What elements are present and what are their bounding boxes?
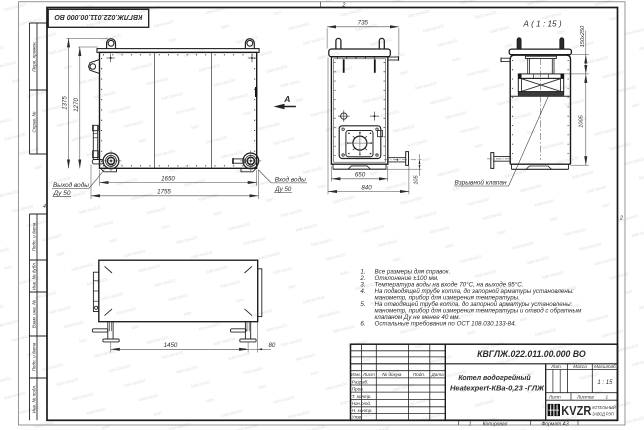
svg-text:Дата: Дата (431, 372, 445, 377)
svg-text:Инв. № дубл.: Инв. № дубл. (31, 262, 36, 290)
svg-text:Подп. и дата: Подп. и дата (31, 222, 36, 251)
svg-text:Перв. примен.: Перв. примен. (31, 41, 36, 72)
svg-text:840: 840 (361, 184, 372, 191)
svg-text:А: А (283, 94, 290, 104)
svg-text:1375: 1375 (62, 96, 69, 110)
svg-text:Копировал: Копировал (483, 422, 508, 428)
svg-text:КВГЛЖ.022.011.00.000 ВО: КВГЛЖ.022.011.00.000 ВО (477, 349, 586, 359)
svg-text:Масса: Масса (573, 364, 587, 369)
svg-text:1270: 1270 (73, 98, 80, 112)
svg-text:Взрывной клапан: Взрывной клапан (455, 180, 508, 187)
svg-text:1450: 1450 (164, 342, 178, 349)
svg-text:Формат А3: Формат А3 (541, 422, 569, 428)
svg-text:KVZR: KVZR (561, 403, 591, 418)
svg-text:1005: 1005 (579, 114, 585, 127)
svg-text:80: 80 (268, 342, 275, 349)
svg-text:1755: 1755 (157, 189, 171, 196)
svg-text:Утв.: Утв. (352, 415, 362, 420)
svg-text:№ докум.: № докум. (382, 372, 402, 377)
svg-text:1650: 1650 (161, 175, 175, 182)
svg-text:Изм.: Изм. (351, 372, 361, 377)
svg-text:Подп. и дата: Подп. и дата (31, 342, 36, 371)
svg-text:2: 2 (619, 216, 623, 222)
svg-text:Т. контр.: Т. контр. (352, 394, 372, 399)
svg-text:Листов: Листов (576, 394, 594, 399)
svg-text:КВГЛЖ.022.011.00.000 ВО: КВГЛЖ.022.011.00.000 ВО (54, 13, 142, 22)
svg-text:5.: 5. (360, 301, 365, 308)
svg-text:Разраб.: Разраб. (352, 380, 369, 385)
svg-text:Лит.: Лит. (550, 364, 562, 369)
svg-text:Инв. № подл.: Инв. № подл. (31, 385, 36, 414)
svg-text:КОТЕЛЬНЫЙ: КОТЕЛЬНЫЙ (592, 403, 616, 410)
svg-text:Нач.отд.: Нач.отд. (352, 401, 371, 406)
svg-text:Котел водогрейный: Котел водогрейный (458, 374, 531, 382)
svg-text:Heatexpert-КВа-0,23 -ГЛЖ: Heatexpert-КВа-0,23 -ГЛЖ (450, 386, 545, 393)
svg-text:Лист: Лист (362, 372, 375, 377)
svg-text:1: 1 (606, 394, 609, 399)
svg-text:4.: 4. (360, 288, 365, 295)
svg-text:Ду 50: Ду 50 (52, 191, 71, 197)
svg-text:Выход воды: Выход воды (53, 183, 90, 189)
svg-text:6.: 6. (360, 321, 365, 328)
svg-text:150х250: 150х250 (580, 25, 586, 47)
svg-text:Справ. №: Справ. № (31, 112, 36, 133)
svg-text:А ( 1 : 15 ): А ( 1 : 15 ) (522, 19, 561, 28)
svg-text:Лист: Лист (548, 394, 561, 399)
svg-text:Подп.: Подп. (413, 372, 425, 377)
svg-text:650: 650 (355, 172, 366, 179)
svg-text:Пров.: Пров. (352, 387, 364, 392)
svg-text:735: 735 (358, 20, 369, 27)
svg-text:2: 2 (342, 3, 346, 9)
svg-text:1 : 15: 1 : 15 (597, 380, 613, 386)
svg-text:Масштаб: Масштаб (594, 364, 616, 369)
svg-text:Вход воды: Вход воды (275, 178, 307, 184)
svg-text:4: 4 (43, 204, 46, 210)
svg-text:Ду 50: Ду 50 (274, 187, 292, 193)
svg-text:ЗАВОД РЭП: ЗАВОД РЭП (592, 411, 614, 416)
svg-text:Н. контр.: Н. контр. (352, 408, 373, 413)
svg-text:105: 105 (414, 174, 420, 184)
svg-text:Остальные требования по ОСТ 10: Остальные требования по ОСТ 108.030.133-… (375, 321, 517, 328)
svg-text:Взам. инв. №: Взам. инв. № (31, 300, 36, 328)
svg-text:1: 1 (469, 422, 472, 428)
